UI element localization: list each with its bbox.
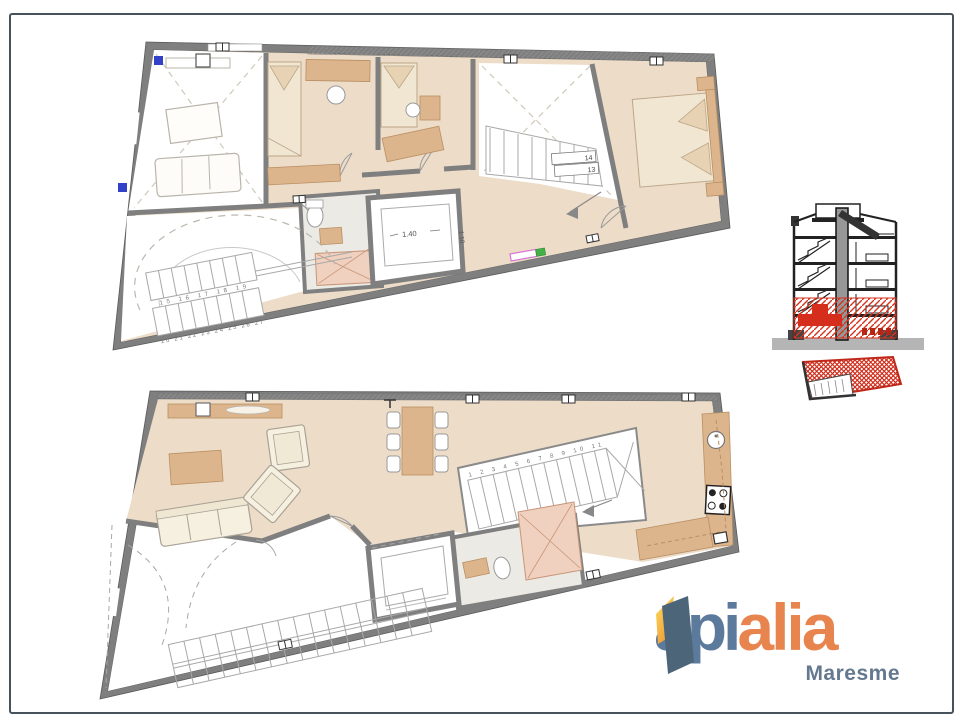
elevator-width-dim: 1.40	[402, 229, 417, 239]
corner-marker	[154, 56, 163, 65]
lower-floor-plan: 1 2 3 4 5 6 7 8 9 10 11	[100, 391, 739, 699]
elevator: 1.40 1.10	[368, 191, 465, 284]
upper-floor-plan: 14 13	[108, 42, 730, 350]
rug	[169, 450, 223, 485]
site-plan	[803, 357, 901, 399]
elevator-depth-dim: 1.10	[457, 230, 465, 244]
logo-door-icon	[656, 592, 696, 676]
dresser	[268, 164, 341, 185]
cabinet	[196, 54, 210, 67]
shower	[315, 249, 373, 286]
chair	[387, 434, 400, 450]
agency-logo: api alia Maresme	[654, 592, 906, 688]
highlighted-duplex	[794, 298, 896, 338]
shower	[518, 502, 582, 580]
logo-region: Maresme	[805, 662, 900, 686]
table	[166, 103, 222, 144]
cooktop	[705, 485, 730, 514]
chair	[435, 412, 448, 428]
armchair	[266, 425, 309, 472]
tread-number: 13	[587, 167, 595, 175]
chair	[327, 86, 345, 104]
dining-area	[387, 407, 448, 475]
chair	[435, 456, 448, 472]
nightstand	[706, 182, 724, 196]
window-gap	[108, 224, 118, 257]
corner-marker	[118, 183, 127, 192]
sink	[319, 227, 342, 244]
chair	[387, 412, 400, 428]
desk	[306, 59, 370, 81]
kitchen-sink	[708, 432, 725, 449]
appliance	[713, 532, 728, 544]
nightstand	[697, 76, 715, 90]
logo-text-alia: alia	[737, 594, 835, 660]
desk-small	[420, 96, 440, 120]
chair	[406, 103, 420, 117]
chair	[435, 434, 448, 450]
chair	[387, 456, 400, 472]
cabinet	[196, 403, 210, 416]
section-diagram	[772, 204, 924, 350]
tread-number: 14	[585, 155, 593, 163]
window-gap	[123, 438, 135, 473]
dining-table	[402, 407, 433, 475]
sofa-outline	[155, 153, 241, 197]
